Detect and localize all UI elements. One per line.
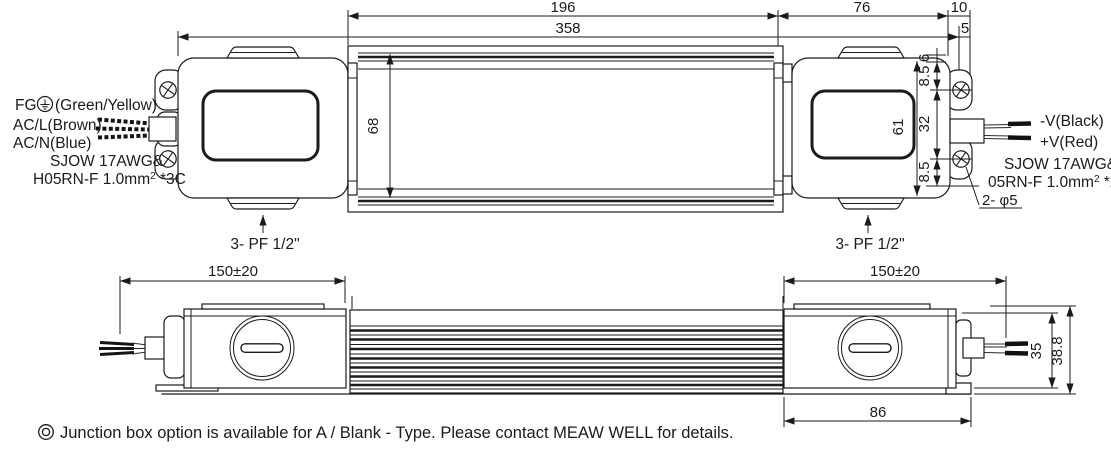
mechanical-drawing-page: 196 76 10 358 5 (0, 0, 1111, 451)
footnote-text: Junction box option is available for A /… (60, 424, 733, 442)
dim-lead-right-label: 150±20 (870, 263, 920, 280)
dim-bracket-ext-small: 5 (959, 20, 970, 37)
input-cable-spec-2: H05RN-F 1.0mm2 *3C (33, 171, 186, 188)
right-junction-box-side (784, 304, 984, 388)
dim-8-5-lower-label: 8.5 (916, 162, 933, 183)
dim-86-label: 86 (870, 404, 887, 421)
end-clamp-right (774, 63, 783, 195)
fg-color-label: (Green/Yellow) (55, 97, 157, 114)
fg-label: FG (15, 97, 37, 114)
cover-lip-left (202, 304, 324, 309)
input-cable-spec-1: SJOW 17AWG& (50, 153, 164, 170)
dim-8-5-upper-label: 8.5 (916, 66, 933, 87)
heatsink-body-side (350, 310, 783, 393)
output-cable-spec-2: 05RN-F 1.0mm2 *2C (988, 174, 1111, 191)
conduit-left-label: 3- PF 1/2" (230, 236, 299, 253)
led-driver-dimension-drawing: 196 76 10 358 5 (0, 0, 1111, 451)
end-clamp-left (348, 63, 357, 195)
dim-61-label: 61 (890, 119, 907, 136)
ac-l-label: AC/L(Brown) (13, 117, 102, 134)
input-cable-stub (149, 117, 176, 141)
output-cable-stub (950, 119, 984, 143)
conduit-right-label: 3- PF 1/2" (835, 236, 904, 253)
heatsink-body (348, 46, 783, 212)
screw-slot (241, 344, 283, 353)
output-cable-spec-1: SJOW 17AWG& (1004, 156, 1111, 173)
v-neg-label: -V(Black) (1040, 113, 1104, 130)
v-pos-label: +V(Red) (1040, 134, 1098, 151)
end-cap-left (164, 316, 185, 378)
screw-slot (849, 344, 891, 353)
dim-68-label: 68 (365, 118, 382, 135)
left-junction-box-side (164, 304, 346, 388)
dim-38-8-label: 38.8 (1049, 336, 1066, 365)
dim-35-label: 35 (1028, 343, 1045, 360)
left-junction-box (178, 47, 348, 209)
footnote: Junction box option is available for A /… (39, 424, 734, 442)
mounting-hole-label: 2- φ5 (982, 192, 1018, 209)
dim-6-label: 6 (916, 54, 933, 62)
dim-196-label: 196 (550, 0, 575, 16)
dim-32-label: 32 (916, 116, 933, 133)
output-cable-stub-side (963, 338, 984, 358)
ac-n-label: AC/N(Blue) (13, 135, 91, 152)
dim-5-label: 5 (961, 20, 969, 37)
dim-76-label: 76 (854, 0, 871, 16)
input-wires-side (99, 343, 147, 355)
dim-lead-left-label: 150±20 (208, 263, 258, 280)
cover-lip-right (794, 304, 930, 309)
dim-10-label: 10 (951, 0, 968, 16)
dim-358-label: 358 (555, 20, 580, 37)
